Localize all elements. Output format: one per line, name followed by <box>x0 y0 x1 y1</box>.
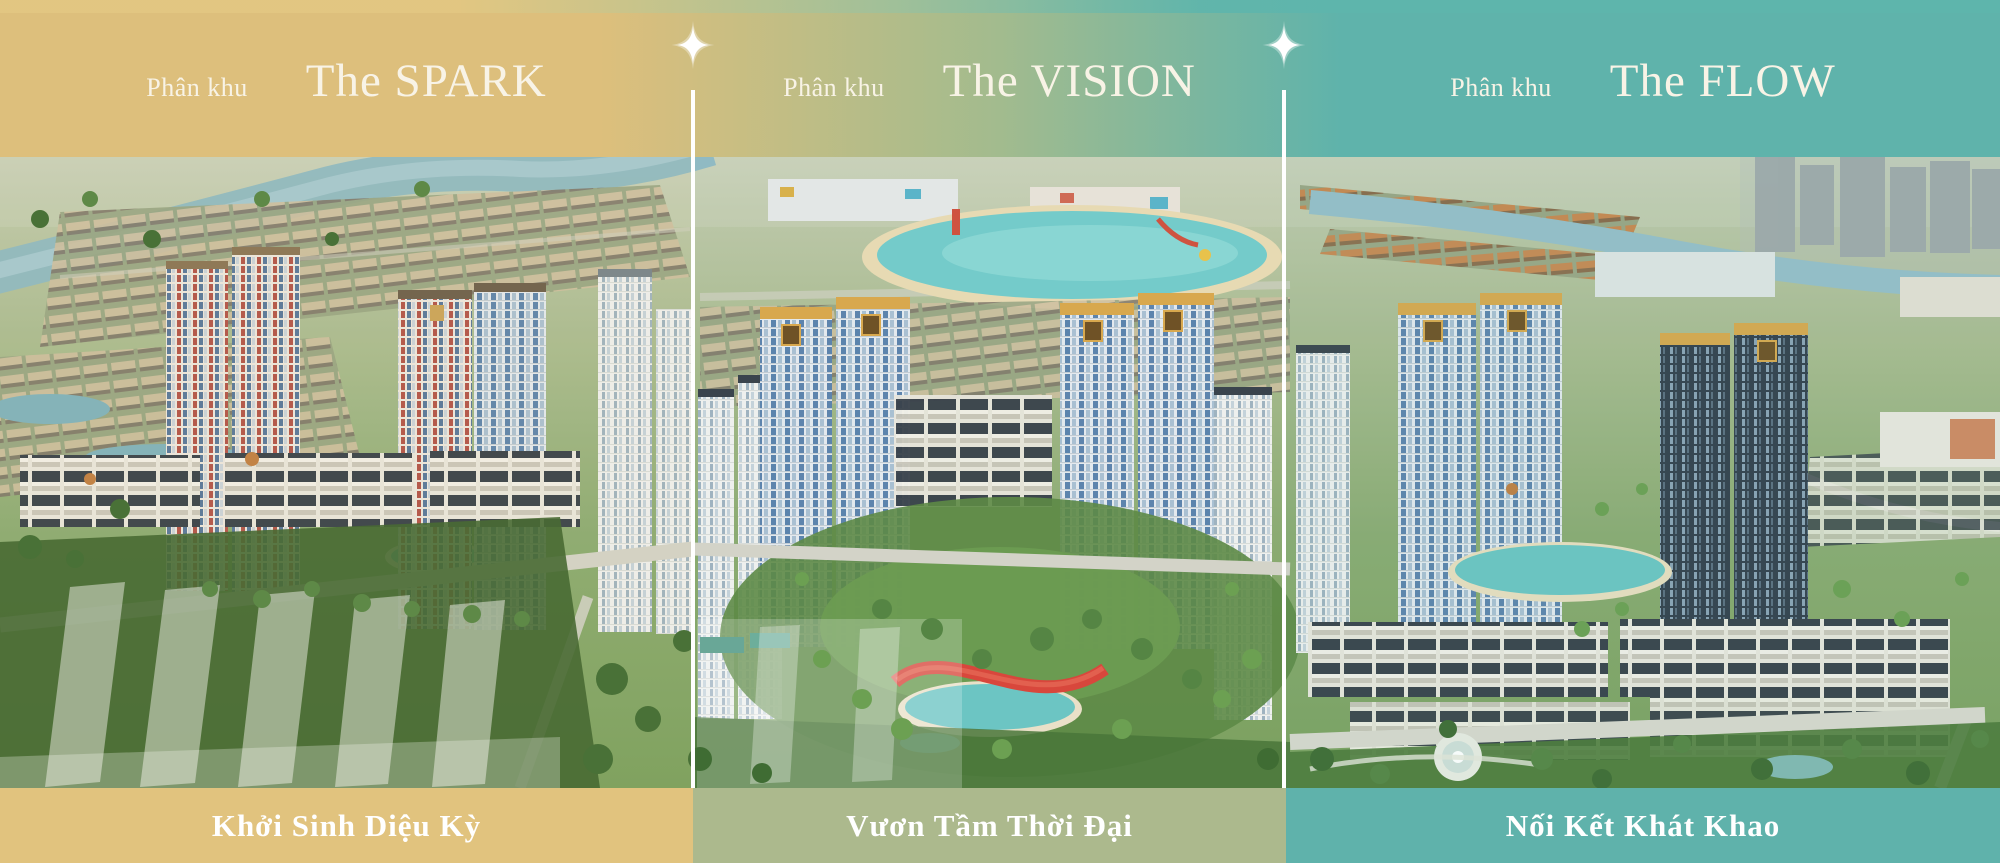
sparkle-icon <box>669 21 717 69</box>
footer-cell-flow: Nối Kết Khát Khao <box>1286 788 2000 863</box>
aerial-render-illustration <box>0 157 2000 788</box>
footer-cell-spark: Khởi Sinh Diệu Kỳ <box>0 788 693 863</box>
panel-divider-line <box>1282 90 1286 788</box>
panel-label: Phân khu <box>146 75 248 101</box>
footer-cell-vision: Vươn Tầm Thời Đại <box>693 788 1286 863</box>
panel-label: Phân khu <box>783 75 885 101</box>
panel-label: Phân khu <box>1450 75 1552 101</box>
header-band: Phân khu The SPARK Phân khu The VISION P… <box>0 0 2000 157</box>
sparkle-icon <box>1260 21 1308 69</box>
footer-band: Khởi Sinh Diệu Kỳ Vươn Tầm Thời Đại Nối … <box>0 788 2000 863</box>
header-panel-spark[interactable]: Phân khu The SPARK <box>0 0 693 157</box>
panel-title: The SPARK <box>306 58 547 105</box>
panel-divider-line <box>691 90 695 788</box>
panel-title: The FLOW <box>1610 58 1836 105</box>
panel-tagline: Vươn Tầm Thời Đại <box>846 808 1133 844</box>
panel-tagline: Khởi Sinh Diệu Kỳ <box>212 808 481 844</box>
header-panel-vision[interactable]: Phân khu The VISION <box>693 0 1286 157</box>
panel-title: The VISION <box>943 58 1196 105</box>
panel-tagline: Nối Kết Khát Khao <box>1506 808 1780 844</box>
aerial-photo <box>0 157 2000 788</box>
header-panel-flow[interactable]: Phân khu The FLOW <box>1286 0 2000 157</box>
three-district-banner: Phân khu The SPARK Phân khu The VISION P… <box>0 0 2000 863</box>
